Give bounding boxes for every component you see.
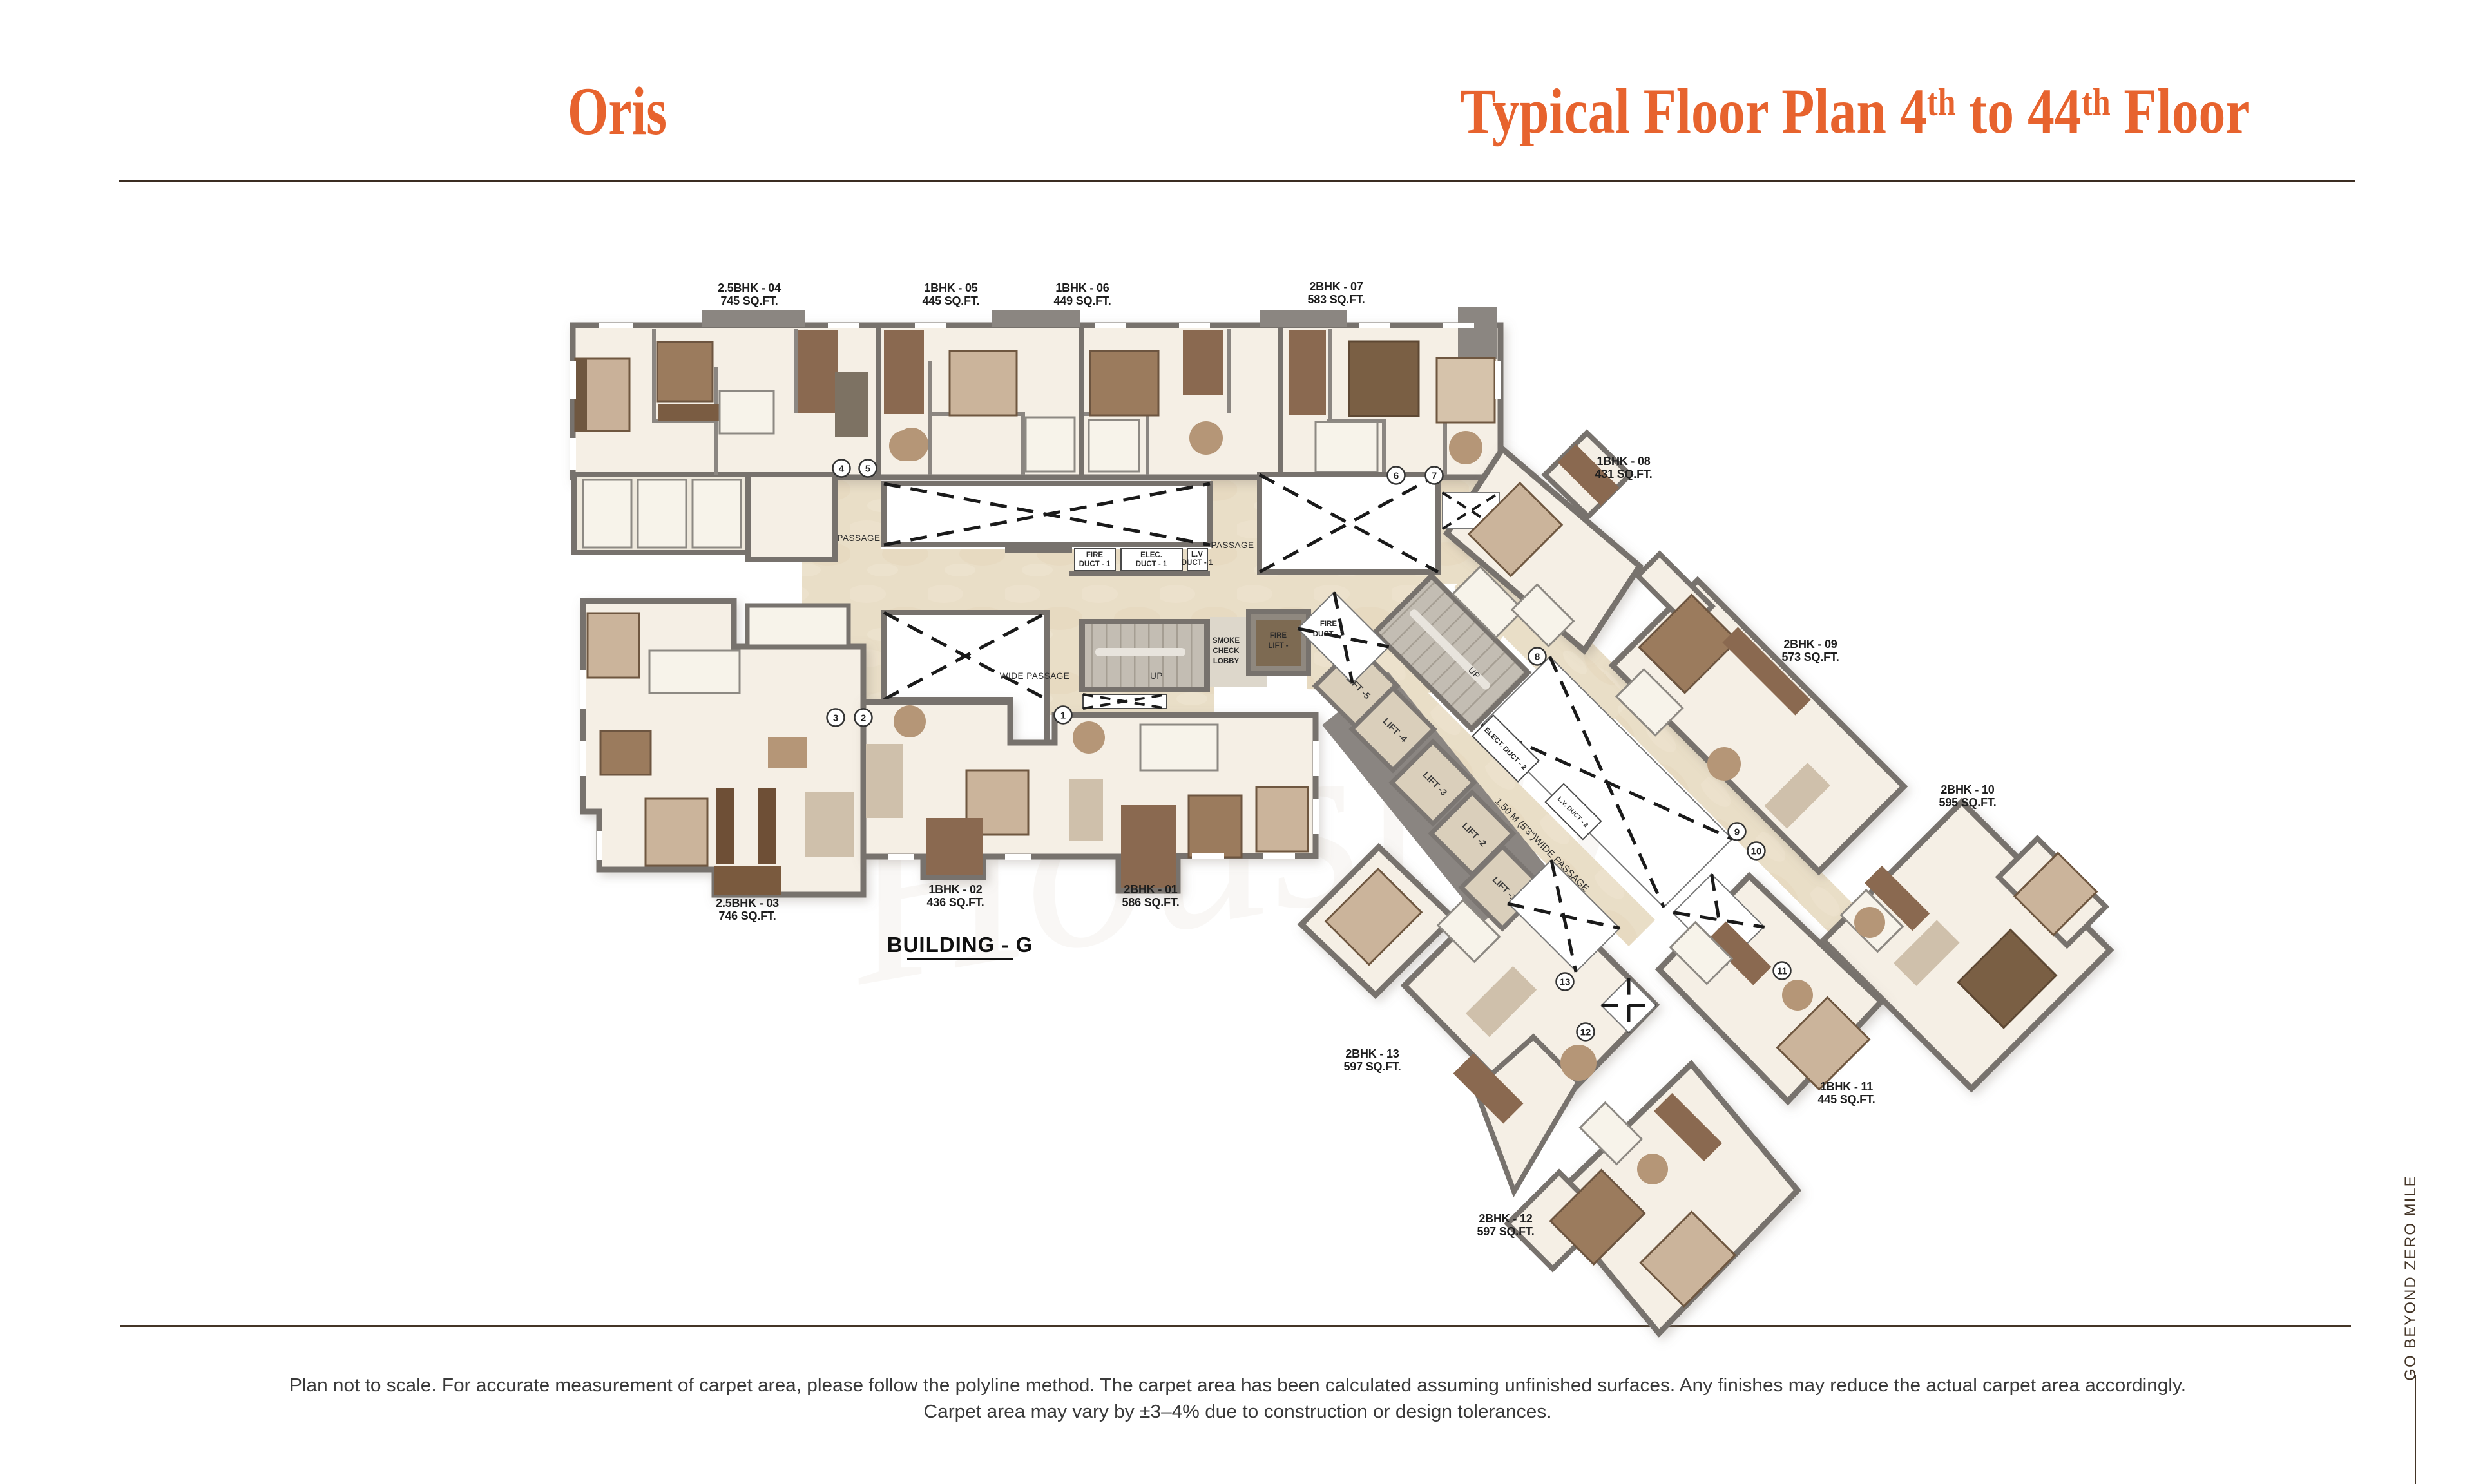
svg-text:1BHK - 02: 1BHK - 02 (928, 883, 982, 896)
svg-text:2: 2 (861, 713, 866, 724)
svg-text:2BHK - 01: 2BHK - 01 (1124, 883, 1177, 896)
svg-text:1BHK - 05: 1BHK - 05 (924, 281, 977, 294)
svg-text:DUCT - 2: DUCT - 2 (1313, 631, 1345, 638)
svg-text:Typical Floor Plan 4ᵗʰ to 44ᵗʰ: Typical Floor Plan 4ᵗʰ to 44ᵗʰ Floor (1461, 75, 2250, 147)
svg-text:L.V: L.V (1191, 551, 1203, 558)
svg-text:PASSAGE: PASSAGE (837, 533, 880, 543)
svg-text:436 SQ.FT.: 436 SQ.FT. (926, 896, 984, 909)
svg-text:1BHK - 11: 1BHK - 11 (1820, 1080, 1873, 1093)
svg-text:3: 3 (833, 713, 838, 724)
svg-text:13: 13 (1560, 977, 1571, 988)
svg-text:2BHK - 12: 2BHK - 12 (1479, 1212, 1532, 1225)
svg-text:ELEC.: ELEC. (1140, 551, 1162, 559)
svg-text:PASSAGE: PASSAGE (1211, 540, 1254, 550)
svg-text:CHECK: CHECK (1213, 647, 1240, 655)
svg-text:FIRE: FIRE (1270, 632, 1287, 640)
svg-text:745 SQ.FT.: 745 SQ.FT. (720, 294, 778, 307)
svg-text:GO BEYOND ZERO MILE: GO BEYOND ZERO MILE (2402, 1175, 2419, 1380)
svg-text:4: 4 (839, 464, 845, 475)
svg-text:597 SQ.FT.: 597 SQ.FT. (1343, 1060, 1401, 1073)
svg-text:9: 9 (1734, 827, 1740, 838)
svg-text:DUCT - 1: DUCT - 1 (1079, 560, 1111, 568)
svg-text:12: 12 (1580, 1027, 1591, 1038)
svg-text:573 SQ.FT.: 573 SQ.FT. (1781, 651, 1839, 663)
svg-text:2.5BHK - 03: 2.5BHK - 03 (716, 897, 779, 909)
svg-text:Plan not to scale. For accurat: Plan not to scale. For accurate measurem… (289, 1375, 2186, 1396)
svg-text:6: 6 (1394, 471, 1399, 482)
svg-text:1BHK - 06: 1BHK - 06 (1055, 281, 1109, 294)
svg-text:Oris: Oris (568, 73, 667, 149)
svg-text:2BHK - 07: 2BHK - 07 (1309, 280, 1363, 293)
svg-text:445 SQ.FT.: 445 SQ.FT. (922, 294, 979, 307)
svg-text:FIRE: FIRE (1320, 620, 1338, 628)
svg-text:FIRE: FIRE (1086, 551, 1104, 559)
svg-text:2BHK - 10: 2BHK - 10 (1941, 783, 1994, 796)
svg-text:UP: UP (1150, 671, 1163, 681)
svg-text:7: 7 (1432, 471, 1437, 482)
svg-text:2BHK - 09: 2BHK - 09 (1783, 638, 1837, 651)
svg-text:5: 5 (865, 464, 870, 475)
svg-text:431 SQ.FT.: 431 SQ.FT. (1595, 468, 1652, 480)
svg-text:586 SQ.FT.: 586 SQ.FT. (1122, 896, 1179, 909)
svg-text:SMOKE: SMOKE (1213, 637, 1240, 645)
svg-text:8: 8 (1535, 652, 1540, 663)
svg-text:10: 10 (1751, 846, 1762, 857)
svg-text:449 SQ.FT.: 449 SQ.FT. (1053, 294, 1111, 307)
svg-text:DUCT - 1: DUCT - 1 (1136, 560, 1167, 568)
svg-text:WIDE PASSAGE: WIDE PASSAGE (1000, 671, 1070, 681)
svg-text:LIFT -: LIFT - (1268, 642, 1288, 650)
svg-text:2.5BHK - 04: 2.5BHK - 04 (718, 281, 781, 294)
svg-text:595 SQ.FT.: 595 SQ.FT. (1939, 796, 1996, 809)
svg-text:DUCT - 1: DUCT - 1 (1182, 559, 1213, 567)
svg-text:LOBBY: LOBBY (1213, 658, 1240, 665)
svg-text:1BHK - 08: 1BHK - 08 (1597, 455, 1650, 468)
svg-text:445 SQ.FT.: 445 SQ.FT. (1817, 1093, 1875, 1106)
svg-text:583 SQ.FT.: 583 SQ.FT. (1307, 293, 1365, 306)
svg-text:2BHK - 13: 2BHK - 13 (1345, 1047, 1399, 1060)
svg-text:Carpet area may vary by ±3–4%: Carpet area may vary by ±3–4% due to con… (924, 1402, 1552, 1422)
svg-text:1: 1 (1060, 710, 1066, 721)
svg-text:597 SQ.FT.: 597 SQ.FT. (1477, 1225, 1534, 1238)
svg-text:BUILDING - G: BUILDING - G (887, 933, 1033, 956)
svg-text:746 SQ.FT.: 746 SQ.FT. (718, 909, 776, 922)
svg-text:11: 11 (1777, 966, 1787, 977)
